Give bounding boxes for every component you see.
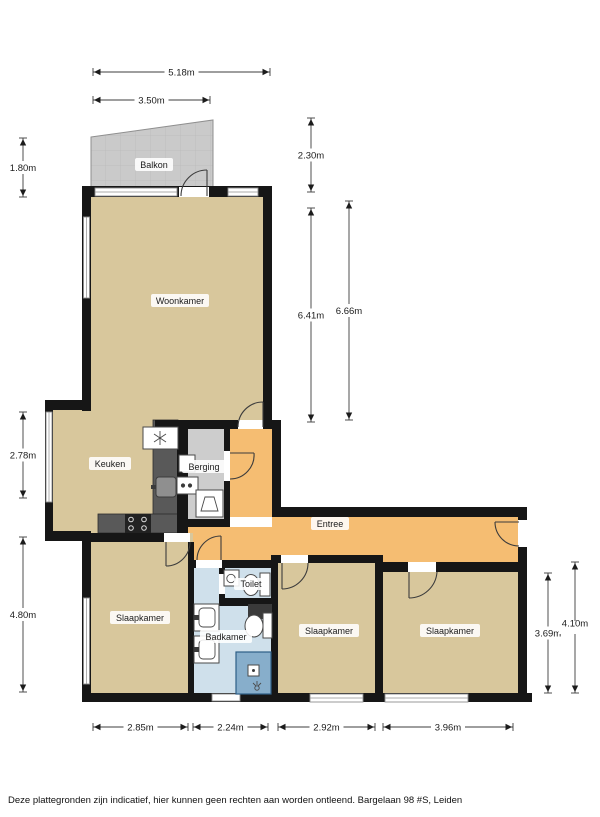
svg-text:6.41m: 6.41m	[298, 311, 324, 322]
dimension-bedroom-right-width: 3.96m	[383, 721, 513, 734]
label-bedroom-right: Slaapkamer	[420, 624, 480, 637]
svg-text:2.92m: 2.92m	[313, 723, 339, 734]
living-room-floor	[86, 192, 272, 429]
bedroom-left-label: Slaapkamer	[116, 613, 164, 623]
oven-knob	[188, 483, 192, 487]
hall-label: Entree	[317, 519, 344, 529]
label-bedroom-left: Slaapkamer	[110, 611, 170, 624]
bathroom-sink-2-faucet	[194, 647, 199, 652]
stove	[125, 514, 151, 533]
svg-text:3.96m: 3.96m	[435, 723, 461, 734]
svg-text:2.24m: 2.24m	[217, 723, 243, 734]
dimension-bedroom-right-outer: 4.10m	[559, 562, 591, 693]
dimension-balcony-depth-left: 1.80m	[7, 138, 39, 197]
bathroom-sink-1-faucet	[194, 615, 199, 620]
toilet2-tank	[263, 613, 272, 638]
floor-plan-page: Balkon Woonkamer Keuken Berging Entree T…	[0, 0, 600, 812]
label-storage: Berging	[182, 460, 226, 473]
svg-text:4.10m: 4.10m	[562, 619, 588, 630]
dimension-bedroom-middle-width: 2.92m	[278, 721, 375, 734]
bedroom-middle-label: Slaapkamer	[305, 626, 353, 636]
dimension-top-width: 5.18m	[93, 66, 270, 79]
label-kitchen: Keuken	[89, 457, 131, 470]
svg-text:4.80m: 4.80m	[10, 610, 36, 621]
svg-text:6.66m: 6.66m	[336, 306, 362, 317]
washing-machine	[196, 490, 223, 517]
dimension-balcony-depth-right: 2.30m	[295, 118, 327, 192]
svg-text:3.69m: 3.69m	[535, 629, 561, 640]
oven-knob	[181, 483, 185, 487]
dimension-bathroom-width: 2.24m	[193, 721, 268, 734]
bathroom-label: Badkamer	[205, 632, 246, 642]
oven-icon	[177, 477, 198, 494]
kitchen-faucet	[151, 485, 156, 489]
toilet-label: Toilet	[240, 579, 262, 589]
dimension-living-height-inner: 6.41m	[295, 208, 327, 422]
label-hall: Entree	[311, 517, 349, 530]
svg-text:2.30m: 2.30m	[298, 151, 324, 162]
floor-plan-svg: Balkon Woonkamer Keuken Berging Entree T…	[0, 0, 600, 812]
label-bedroom-middle: Slaapkamer	[299, 624, 359, 637]
disclaimer-text: Deze plattegronden zijn indicatief, hier…	[8, 795, 462, 806]
dimension-balcony-width: 3.50m	[93, 94, 210, 107]
kitchen-sink	[156, 477, 176, 497]
label-bathroom: Badkamer	[200, 630, 252, 643]
label-living: Woonkamer	[151, 294, 209, 307]
living-label: Woonkamer	[156, 296, 204, 306]
balcony-label: Balkon	[140, 160, 168, 170]
label-balcony: Balkon	[135, 158, 173, 171]
svg-text:3.50m: 3.50m	[138, 96, 164, 107]
dimension-living-height-outer: 6.66m	[333, 201, 365, 420]
dimension-bedroom-left-side: 4.80m	[7, 537, 39, 692]
svg-text:1.80m: 1.80m	[10, 163, 36, 174]
storage-label: Berging	[188, 462, 219, 472]
kitchen-label: Keuken	[95, 459, 126, 469]
dimension-bedroom-left-width: 2.85m	[93, 721, 188, 734]
label-toilet: Toilet	[234, 578, 268, 590]
svg-text:2.78m: 2.78m	[10, 451, 36, 462]
dimension-kitchen-side: 2.78m	[7, 412, 39, 498]
svg-text:5.18m: 5.18m	[168, 68, 194, 79]
window-bathroom-south	[212, 694, 240, 701]
svg-text:2.85m: 2.85m	[127, 723, 153, 734]
hall-floor-column	[230, 429, 272, 517]
shower-drain-dot	[252, 669, 255, 672]
hall-floor-corridor	[272, 512, 527, 562]
bedroom-right-label: Slaapkamer	[426, 626, 474, 636]
